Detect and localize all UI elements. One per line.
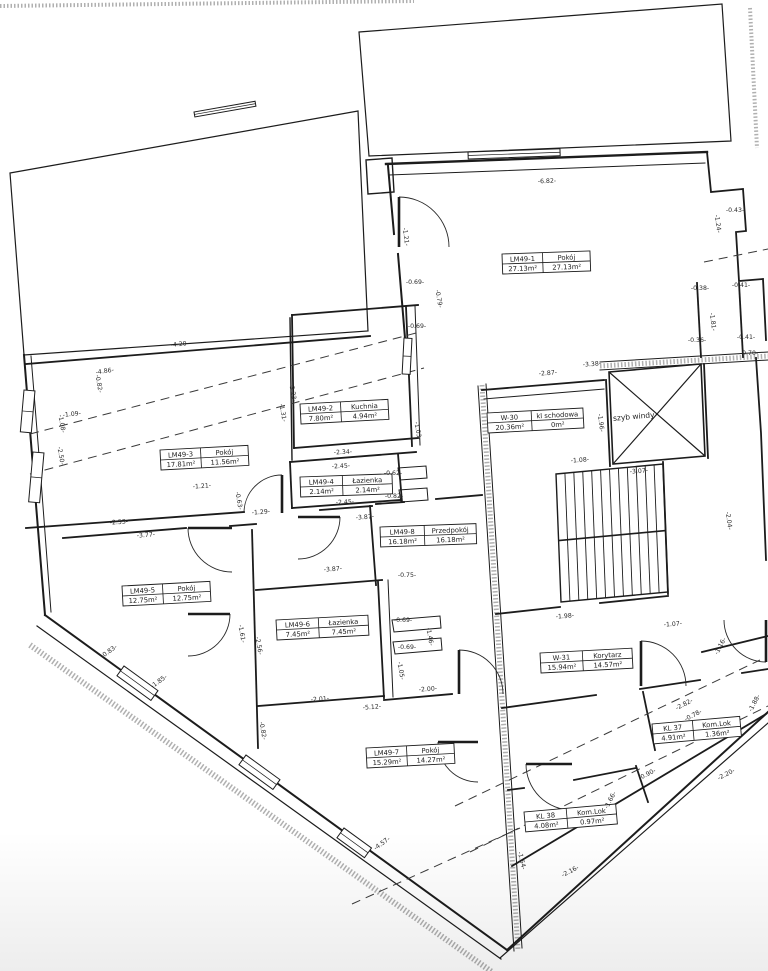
dimension-label: -2.20- — [717, 767, 736, 782]
dimension-label: -0.62- — [384, 470, 402, 477]
room-label: LM49-8Przedpokój16.18m²16.18m² — [380, 524, 477, 547]
dimension-label: -3.87- — [324, 565, 343, 573]
dimension-label: -2.53- — [110, 518, 129, 526]
dimension-label: -0.69- — [408, 323, 426, 330]
wall — [574, 768, 636, 780]
room-id: LM49-4 — [309, 478, 334, 487]
floorplan-page: LM49-1Pokój27.13m²27.13m²LM49-2Kuchnia7.… — [0, 0, 768, 971]
room-name: Kuchnia — [351, 402, 378, 411]
room-area-design: 2.14m² — [355, 486, 380, 495]
dimension-label: -0.63- — [233, 491, 243, 510]
door — [244, 475, 282, 513]
dimension-label: -4.57- — [373, 836, 392, 852]
stair-tread — [618, 468, 623, 596]
room-area-design: 14.27m² — [416, 755, 445, 765]
door-swing-arc — [298, 517, 340, 559]
dimension-label: -2.16- — [561, 864, 580, 879]
room-label: LM49-5Pokój12.75m²12.75m² — [122, 581, 211, 606]
wall — [256, 580, 382, 590]
room-area-design: 12.75m² — [172, 593, 201, 603]
dimension-label: -0.82- — [385, 493, 403, 500]
dimension-label: -0.83- — [100, 644, 119, 660]
wall — [399, 488, 428, 502]
stair-tread — [565, 473, 570, 601]
room-area-existing: 15.29m² — [372, 758, 401, 768]
wall — [707, 152, 766, 340]
room-area-design: 16.18m² — [436, 536, 465, 545]
wall — [500, 723, 768, 958]
wall — [398, 466, 427, 480]
dimension-label: -3.87- — [356, 513, 375, 521]
dimension-label: -0.43- — [726, 207, 744, 214]
wall — [436, 495, 482, 499]
room-label: W-30kl schodowa20.36m²0m² — [487, 408, 584, 433]
wall — [389, 163, 705, 175]
dimension-label: -1.31- — [277, 403, 287, 422]
wall — [502, 695, 596, 708]
door-swing-arc — [244, 475, 282, 513]
room-area-existing: 15.94m² — [547, 663, 576, 673]
dimension-label: -1.05- — [395, 661, 405, 680]
hatch-band — [30, 645, 492, 971]
window-marker — [20, 390, 35, 433]
room-area-design: 0m² — [551, 420, 565, 429]
room-area-existing: 12.75m² — [128, 596, 157, 606]
room-area-design: 27.13m² — [552, 263, 581, 272]
wall — [640, 680, 700, 689]
wall — [230, 524, 256, 526]
door — [526, 764, 572, 810]
dimension-label: -0.90- — [638, 767, 657, 782]
dimension-label: -1.24- — [713, 214, 722, 233]
dimension-label: -1.08- — [571, 456, 590, 464]
neighbor-building-outline — [359, 4, 731, 156]
wall — [478, 386, 514, 951]
dimension-label: -3.07- — [630, 467, 649, 475]
door — [641, 641, 686, 686]
window-glass-line — [194, 104, 255, 115]
room-id: W-30 — [500, 413, 518, 422]
window-marker — [194, 101, 256, 117]
dimension-label: -3.77- — [137, 531, 156, 539]
room-area-existing: 7.45m² — [286, 630, 311, 639]
stair-tread — [601, 470, 606, 598]
wall — [398, 254, 405, 338]
room-label: LM49-4Łazienka2.14m²2.14m² — [300, 474, 393, 497]
stair-tread — [654, 465, 659, 593]
room-name: Łazienka — [327, 618, 358, 628]
wall — [63, 528, 186, 538]
dimension-label: -2.04- — [724, 511, 733, 530]
dimension-label: -1.21- — [401, 227, 410, 246]
stair-tread — [592, 471, 597, 599]
dimension-label: -2.00- — [419, 685, 438, 693]
wall — [742, 669, 768, 673]
wall — [508, 788, 524, 790]
room-area-existing: 16.18m² — [388, 537, 417, 546]
room-name: Pokój — [421, 746, 439, 755]
dimension-label: -1.98- — [556, 612, 575, 620]
room-id: KL 37 — [663, 723, 683, 733]
dimension-label: -0.82- — [93, 374, 103, 393]
room-label: LM49-1Pokój27.13m²27.13m² — [502, 251, 591, 274]
dimension-label: -0.41- — [732, 282, 750, 289]
room-id: W-31 — [552, 653, 570, 662]
dimension-label: -3.23- — [287, 383, 297, 402]
stair-tread — [610, 469, 615, 597]
wall — [482, 380, 604, 390]
room-label: KL 38Kom.Lok4.08m²0.97m² — [524, 804, 617, 832]
dimension-label: -1.09- — [62, 410, 81, 419]
room-id: LM49-1 — [510, 255, 535, 264]
room-area-design: 11.56m² — [210, 457, 239, 467]
wall — [294, 438, 418, 448]
room-name: Łazienka — [351, 476, 382, 485]
room-area-existing: 2.14m² — [309, 487, 334, 496]
staircase-layer — [556, 464, 668, 602]
dashed-line — [704, 249, 768, 262]
window-glass-line — [242, 760, 276, 785]
room-label: LM49-2Kuchnia7.80m²4.94m² — [300, 399, 389, 424]
room-name: Pokój — [215, 448, 233, 457]
room-label: W-31Korytarz15.94m²14.57m² — [540, 648, 633, 673]
door-swing-arc — [188, 528, 232, 572]
dimension-label: -0.82- — [257, 721, 267, 740]
wall — [507, 712, 768, 950]
dimension-label: -1.46- — [424, 627, 434, 646]
dimension-label: -1.61- — [236, 624, 246, 643]
dimension-label: -4.20- — [170, 340, 189, 349]
wall — [37, 626, 501, 959]
dashed-line — [352, 828, 520, 904]
wall — [26, 512, 244, 528]
dimension-label: -1.81- — [708, 312, 717, 331]
dimension-label: -1.64- — [516, 851, 527, 870]
room-id: LM49-5 — [130, 586, 155, 595]
stair-tread — [583, 472, 588, 600]
wall — [320, 506, 372, 510]
dimension-label: -0.79- — [433, 289, 443, 308]
neighbor-building-outline — [10, 111, 368, 355]
neighbor-buildings-layer — [10, 4, 731, 355]
hatch-band — [0, 1, 414, 6]
room-id: LM49-8 — [390, 528, 415, 537]
door — [298, 517, 340, 559]
dimension-label: -0.70- — [740, 350, 758, 357]
dimension-label: -2.50- — [55, 446, 65, 465]
wall — [496, 607, 560, 614]
room-area-design: 14.57m² — [593, 660, 622, 670]
room-area-existing: 17.81m² — [166, 460, 195, 470]
stair-tread — [627, 467, 632, 595]
wall — [384, 694, 452, 700]
stair-tread — [645, 466, 650, 594]
room-label: KL 37Kom.Lok4.91m²1.36m² — [652, 716, 741, 744]
wall — [290, 462, 292, 508]
dimension-label: -3.38- — [583, 360, 602, 368]
stair-tread — [574, 472, 579, 600]
window-marker — [239, 755, 280, 789]
room-id: KL 38 — [536, 811, 556, 821]
door — [188, 528, 232, 572]
room-label: LM49-7Pokój15.29m²14.27m² — [366, 743, 455, 768]
dimension-label: -6.82- — [538, 178, 556, 186]
wall — [739, 283, 743, 357]
dimension-label: -0.69- — [398, 644, 416, 651]
dimension-label: -5.12- — [363, 703, 382, 711]
dimension-label: -1.21- — [193, 482, 212, 490]
floor-plan-drawing: LM49-1Pokój27.13m²27.13m²LM49-2Kuchnia7.… — [0, 0, 768, 971]
dimension-label: -0.75- — [398, 572, 416, 579]
room-area-design: 4.94m² — [353, 411, 378, 420]
wall — [756, 358, 766, 560]
dimension-label: -2.45- — [332, 463, 351, 471]
dimension-label: -2.34- — [334, 449, 353, 457]
room-area-existing: 7.80m² — [309, 414, 334, 423]
dimension-label: -1.85- — [150, 674, 169, 690]
wall — [484, 389, 604, 399]
door-swing-arc — [188, 614, 230, 656]
stair-tread — [636, 467, 641, 595]
room-id: LM49-2 — [308, 404, 333, 413]
wall — [697, 283, 701, 357]
room-label: LM49-3Pokój17.81m²11.56m² — [160, 445, 249, 470]
room-name: Korytarz — [593, 651, 622, 660]
wall — [378, 582, 384, 698]
window-marker — [402, 338, 412, 374]
room-id: LM49-6 — [285, 620, 310, 629]
wall — [388, 580, 393, 697]
door-swing-arc — [641, 641, 686, 686]
room-name: Pokój — [557, 253, 575, 262]
dimension-label: -2.45- — [336, 499, 355, 507]
hatch-band — [750, 8, 757, 148]
room-id: LM49-7 — [374, 748, 399, 757]
dimension-label: -2.01- — [311, 695, 330, 703]
window-glass-line — [120, 671, 154, 696]
dimension-label: -1.29- — [252, 508, 271, 516]
room-area-existing: 20.36m² — [495, 423, 524, 433]
dimension-label: -0.69- — [406, 279, 424, 286]
wall — [702, 636, 768, 652]
room-label: LM49-6Łazienka7.45m²7.45m² — [276, 615, 369, 640]
door-swing-arc — [526, 764, 572, 810]
room-area-existing: 27.13m² — [508, 264, 537, 273]
room-area-design: 7.45m² — [331, 627, 356, 636]
room-id: LM49-3 — [168, 450, 193, 459]
dimension-label: -2.87- — [539, 369, 558, 377]
dimension-label: -1.96- — [596, 413, 605, 432]
door — [188, 614, 230, 656]
dimension-label: -0.41- — [737, 334, 755, 341]
dimension-label: -0.38- — [691, 285, 709, 292]
dimension-label: -1.07- — [664, 620, 683, 628]
room-name: Przedpokój — [432, 526, 469, 535]
dimension-label: -0.69- — [394, 617, 412, 624]
room-name: Pokój — [177, 584, 195, 593]
wall — [486, 384, 522, 948]
dimension-label: -0.36- — [688, 337, 706, 344]
